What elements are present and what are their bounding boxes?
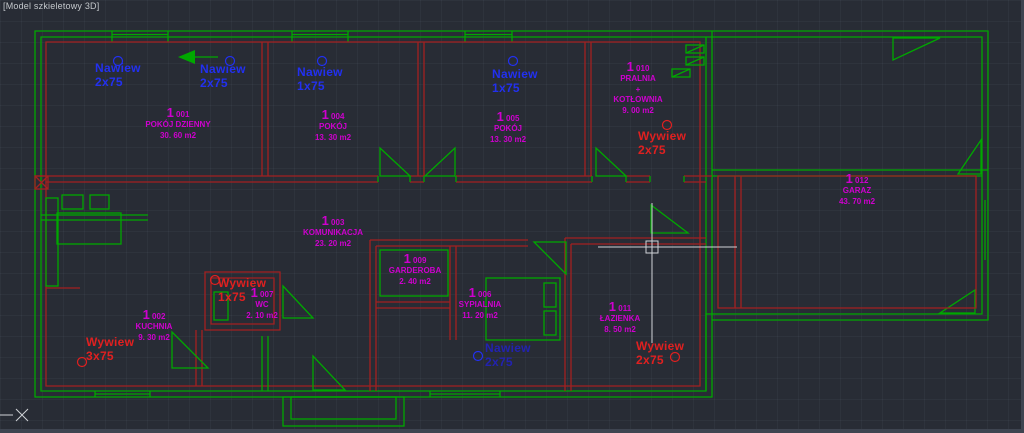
floorplan-linework (0, 0, 1024, 433)
interior-walls-red (35, 42, 976, 391)
vent-marker-circles (78, 57, 680, 367)
arrow-symbol (178, 50, 218, 64)
crosshair-cursor (598, 203, 737, 343)
viewport-title[interactable]: [Model szkieletowy 3D] (3, 1, 99, 11)
cad-drawing-canvas[interactable]: [Model szkieletowy 3D] (0, 0, 1024, 433)
furniture (41, 45, 704, 426)
exterior-walls-green (35, 31, 988, 397)
ucs-marker (0, 409, 28, 421)
window-symbols (95, 31, 985, 397)
door-swing-symbols (172, 148, 688, 390)
